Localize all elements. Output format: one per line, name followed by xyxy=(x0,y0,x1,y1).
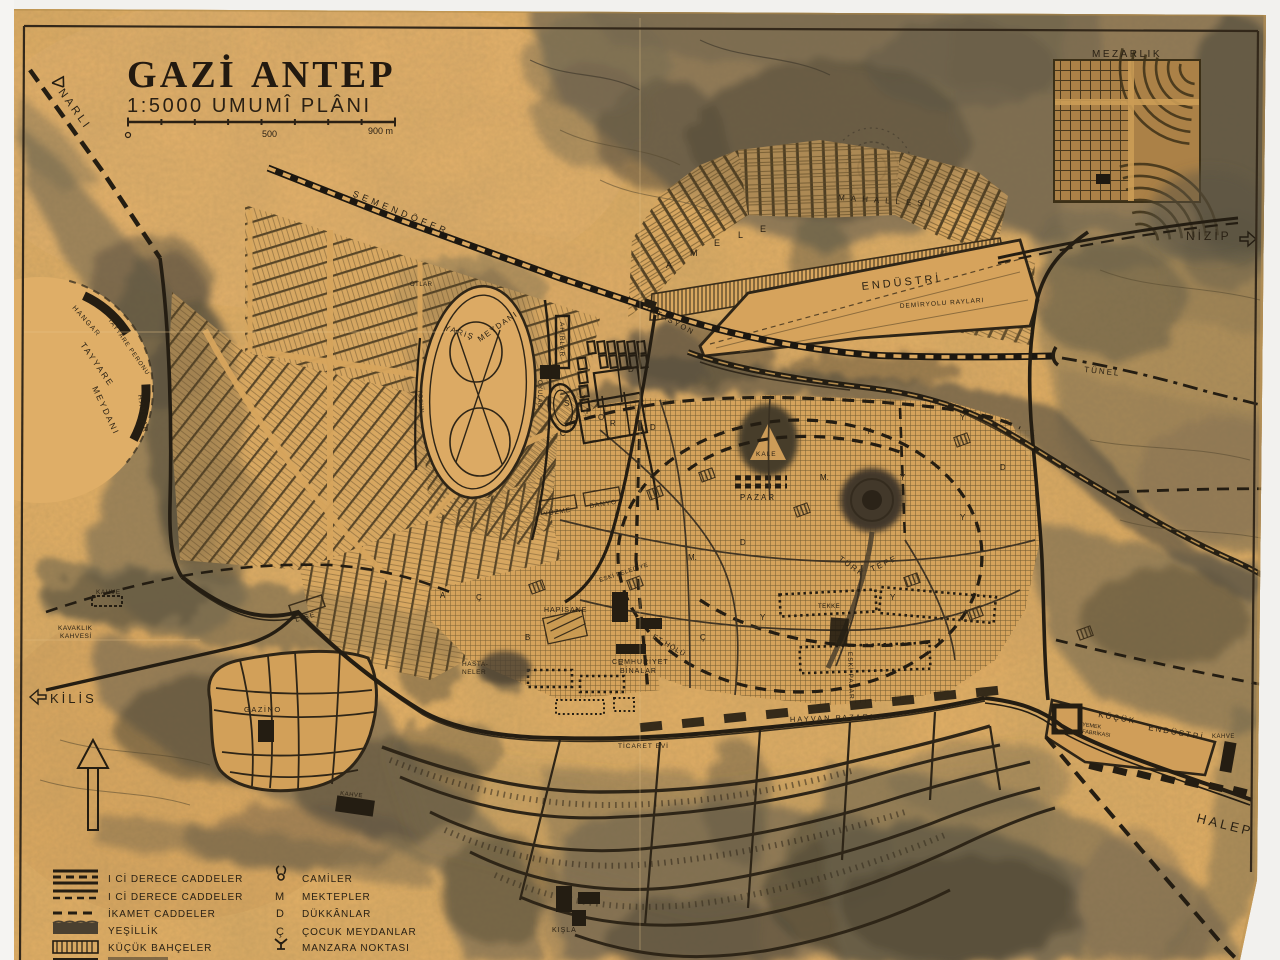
svg-text:S: S xyxy=(564,399,569,408)
svg-text:NELER: NELER xyxy=(462,669,486,676)
svg-text:OYULAR: OYULAR xyxy=(536,380,542,408)
svg-text:1:5000 UMUMÎ PLÂNI: 1:5000 UMUMÎ PLÂNI xyxy=(127,94,372,117)
svg-text:Y: Y xyxy=(890,593,896,602)
svg-text:D: D xyxy=(1000,463,1006,472)
svg-text:GAZİNO: GAZİNO xyxy=(244,705,282,714)
svg-text:D: D xyxy=(276,908,284,920)
svg-text:ÇOCUK MEYDANLAR: ÇOCUK MEYDANLAR xyxy=(302,927,417,938)
svg-text:TİCARET EVİ: TİCARET EVİ xyxy=(618,741,669,750)
svg-text:YEŞİLLİK: YEŞİLLİK xyxy=(108,924,159,937)
svg-text:D: D xyxy=(628,365,634,374)
svg-text:M.: M. xyxy=(820,473,829,482)
svg-text:Y: Y xyxy=(960,513,966,522)
svg-text:CAMİLER: CAMİLER xyxy=(302,872,353,885)
svg-text:AHIRLAR: AHIRLAR xyxy=(558,322,565,357)
svg-text:A: A xyxy=(440,591,446,600)
svg-text:C: C xyxy=(560,429,566,438)
svg-text:I Cİ DERECE CADDELER: I Cİ DERECE CADDELER xyxy=(108,872,243,885)
svg-text:HAPİSANE: HAPİSANE xyxy=(544,605,587,614)
svg-text:E: E xyxy=(760,224,767,234)
svg-text:O: O xyxy=(598,413,604,422)
svg-text:OTLAR: OTLAR xyxy=(410,282,433,288)
svg-text:M: M xyxy=(275,891,284,903)
svg-text:I Cİ DERECE CADDELER: I Cİ DERECE CADDELER xyxy=(108,890,243,903)
svg-text:KAHVE: KAHVE xyxy=(1212,734,1235,740)
svg-text:Y: Y xyxy=(866,427,872,436)
svg-text:B: B xyxy=(525,633,530,642)
svg-text:E: E xyxy=(618,658,623,667)
svg-text:KİLİS: KİLİS xyxy=(50,691,97,706)
svg-text:M: M xyxy=(690,248,699,258)
svg-text:MANZARA NOKTASI: MANZARA NOKTASI xyxy=(302,943,410,954)
svg-text:KAHVESİ: KAHVESİ xyxy=(60,631,92,640)
svg-text:900 m: 900 m xyxy=(368,126,393,136)
svg-text:KAVAKLIK: KAVAKLIK xyxy=(58,625,93,632)
svg-text:L: L xyxy=(738,230,744,240)
svg-text:A: A xyxy=(666,260,673,270)
svg-text:MEKTEPLER: MEKTEPLER xyxy=(302,892,371,903)
svg-text:HASTA-: HASTA- xyxy=(462,661,488,668)
svg-text:İKAMET CADDELER: İKAMET CADDELER xyxy=(108,907,216,920)
svg-text:DÜKKÂNLAR: DÜKKÂNLAR xyxy=(302,907,371,920)
svg-text:E: E xyxy=(714,238,721,248)
svg-text:D: D xyxy=(740,538,746,547)
svg-text:TEKKE: TEKKE xyxy=(818,604,840,610)
svg-text:M.: M. xyxy=(688,553,697,562)
svg-text:Ç: Ç xyxy=(700,633,706,642)
svg-text:KALE: KALE xyxy=(756,451,777,458)
svg-text:KIŞLA: KIŞLA xyxy=(552,927,577,934)
svg-text:R: R xyxy=(610,419,616,428)
svg-text:Y: Y xyxy=(900,473,906,482)
svg-text:D: D xyxy=(650,423,656,432)
svg-text:BİNALAR: BİNALAR xyxy=(620,666,657,675)
svg-text:Ç: Ç xyxy=(476,593,482,602)
svg-text:KÜÇÜK BAHÇELER: KÜÇÜK BAHÇELER xyxy=(108,942,212,954)
svg-text:NİZİP: NİZİP xyxy=(1186,229,1232,243)
svg-text:500: 500 xyxy=(262,129,277,139)
svg-text:Y: Y xyxy=(760,613,766,622)
svg-text:GAZİANTEP: GAZİANTEP xyxy=(127,54,396,96)
svg-text:MEZARLIK: MEZARLIK xyxy=(1092,49,1162,60)
svg-text:P: P xyxy=(586,407,591,416)
svg-text:KAHVE: KAHVE xyxy=(96,589,121,596)
svg-text:Ç: Ç xyxy=(276,926,284,938)
svg-text:Y: Y xyxy=(960,413,966,422)
